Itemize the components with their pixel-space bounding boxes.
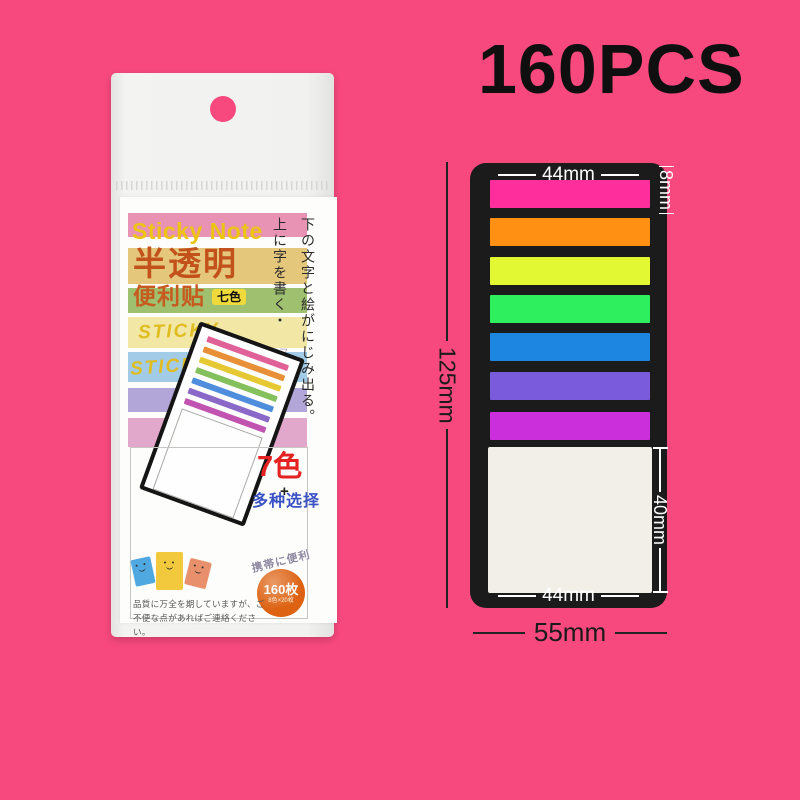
dimension-total-height: 125mm [434, 162, 460, 608]
dimension-strip-height-label: 8mm [657, 170, 675, 210]
dimension-diagram: 44mm 8mm 40mm 44mm [470, 163, 667, 608]
hang-hole [210, 96, 236, 122]
index-tab-strip [490, 218, 650, 246]
index-tab-strip [490, 333, 650, 361]
perforation-line [116, 181, 329, 190]
product-subtitle: 便利贴 [133, 285, 205, 308]
dimension-line [446, 162, 448, 341]
dimension-line [659, 213, 674, 214]
dimension-line [659, 166, 674, 167]
dimension-line [601, 595, 639, 597]
dimension-top-width: 44mm [470, 164, 667, 186]
piece-count-headline: 160PCS [478, 34, 745, 104]
package-bag: Sticky Note 半透明 便利贴 七色 STICKY STICKY 上に字… [111, 73, 334, 637]
dimension-line [498, 174, 536, 176]
index-tab-strip [490, 412, 650, 440]
dimension-line [659, 449, 661, 492]
package-insert-card: Sticky Note 半透明 便利贴 七色 STICKY STICKY 上に字… [120, 197, 337, 623]
dimension-total-height-label: 125mm [436, 347, 459, 424]
quality-note-line2: 不便な点があればご連絡ください。 [133, 613, 256, 637]
product-subtitle-row: 便利贴 七色 [133, 285, 246, 308]
dimension-strip-height: 8mm [655, 166, 677, 214]
quality-note: 品質に万全を期していますが、ご 不便な点があればご連絡ください。 [133, 597, 268, 639]
smiley-face-icon [135, 562, 149, 573]
count-badge-main: 160枚 [264, 582, 299, 598]
seven-color-badge: 七色 [212, 289, 246, 305]
dimension-line [473, 632, 525, 634]
dimension-overall-width: 55mm [452, 617, 688, 648]
dimension-line [446, 429, 448, 608]
dimension-top-width-label: 44mm [542, 164, 595, 186]
quality-note-line1: 品質に万全を期していますが、ご [133, 599, 265, 609]
index-tab-strip [490, 257, 650, 285]
dimension-pad-height: 40mm [649, 447, 671, 593]
count-badge-sub: 8色×20枚 [268, 598, 294, 604]
seven-colors-label: 7色 [257, 453, 302, 482]
index-tab-strip [490, 372, 650, 400]
vertical-note-outer: 下の文字と絵がにじみ出る。 [301, 217, 315, 425]
smiley-note-yellow [156, 552, 183, 590]
multi-choice-label: 多种选择 [252, 494, 320, 510]
vertical-note-inner: 上に字を書く・ [273, 217, 287, 329]
dimension-bottom-width-label: 44mm [542, 585, 595, 607]
dimension-bottom-width: 44mm [470, 585, 667, 607]
smiley-face-icon [164, 561, 176, 570]
dimension-line [615, 632, 667, 634]
sticky-pad-area [488, 447, 652, 593]
dimension-line [601, 174, 639, 176]
dimension-overall-width-label: 55mm [534, 617, 606, 648]
dimension-pad-height-label: 40mm [651, 495, 669, 545]
index-tab-strip [490, 295, 650, 323]
dimension-line [498, 595, 536, 597]
smiley-face-icon [192, 564, 206, 576]
product-image-stage: 160PCS Sticky Note 半透明 便利贴 七色 STICKY STI… [0, 0, 800, 800]
product-title: 半透明 [133, 247, 238, 280]
brand-title: Sticky Note [132, 218, 263, 245]
